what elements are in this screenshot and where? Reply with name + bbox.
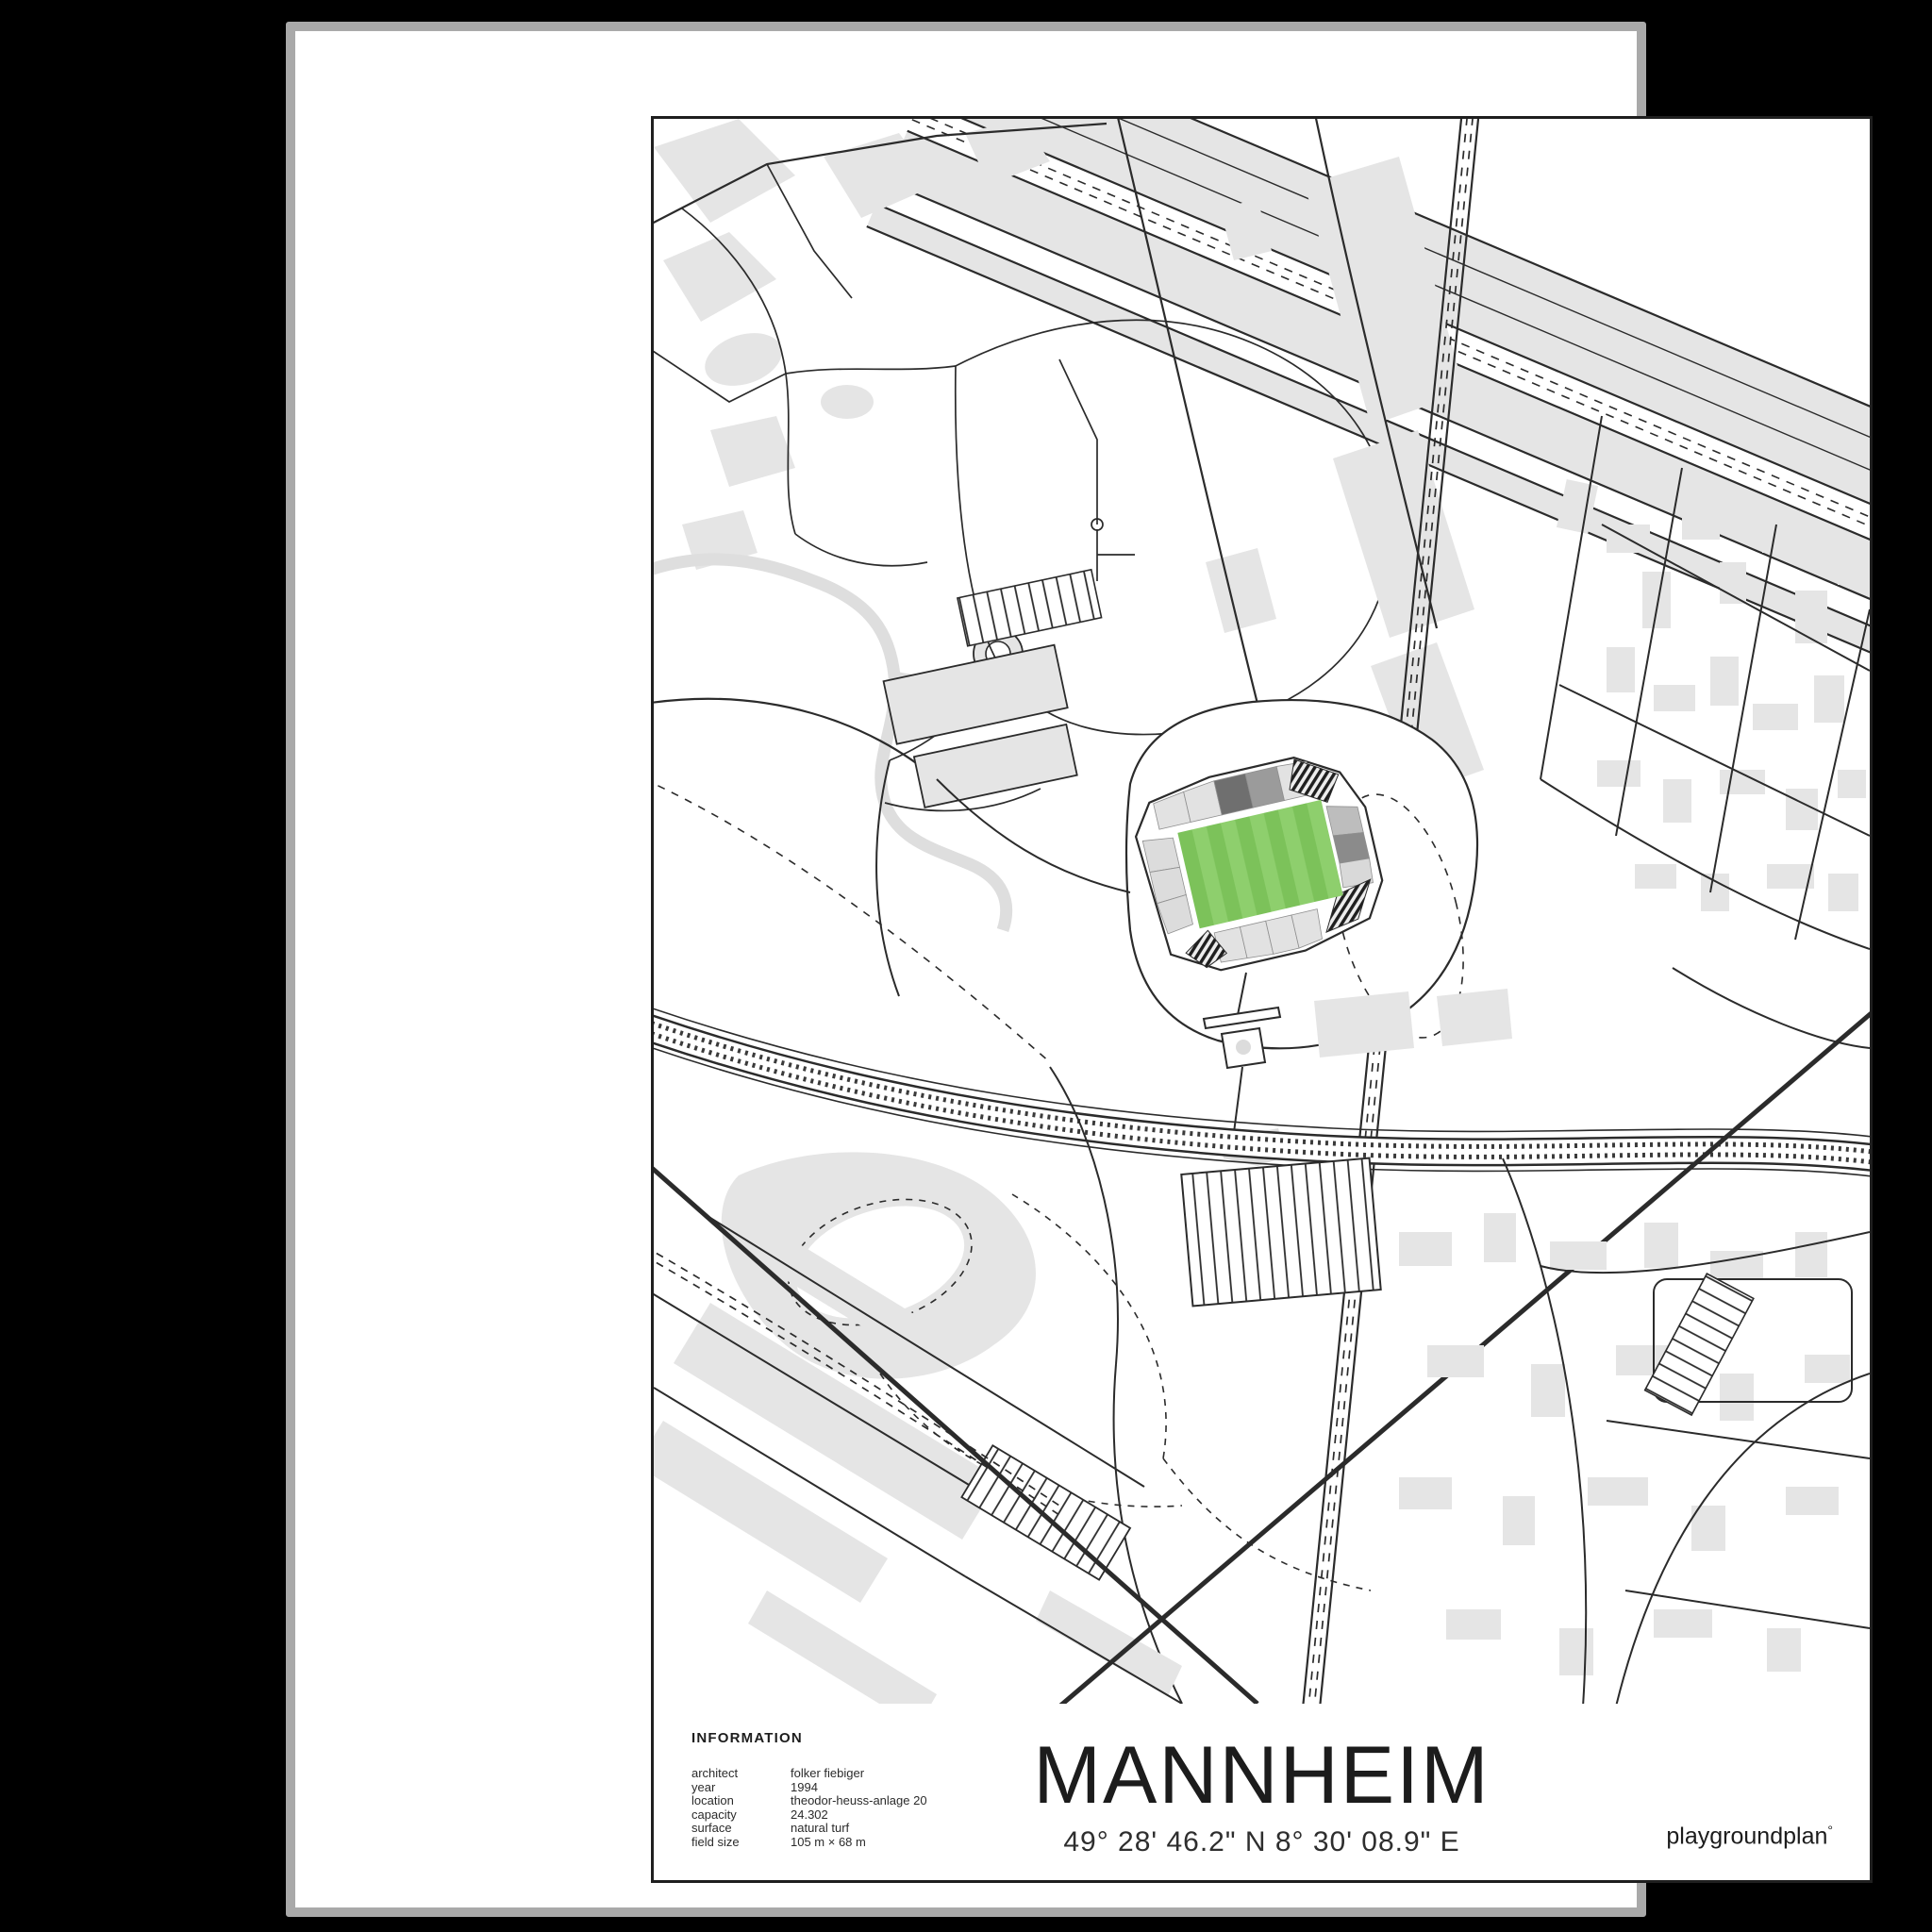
brand-name: playgroundplan [1666,1823,1827,1849]
poster-photo: INFORMATION architect folker fiebiger ye… [0,0,1932,1932]
brand-logo: playgroundplan° [1401,1823,1833,1850]
city-map [654,119,1870,1704]
brand-degree-mark: ° [1827,1823,1833,1838]
city-title: MANNHEIM [651,1735,1873,1816]
poster-paper: INFORMATION architect folker fiebiger ye… [286,22,1646,1917]
